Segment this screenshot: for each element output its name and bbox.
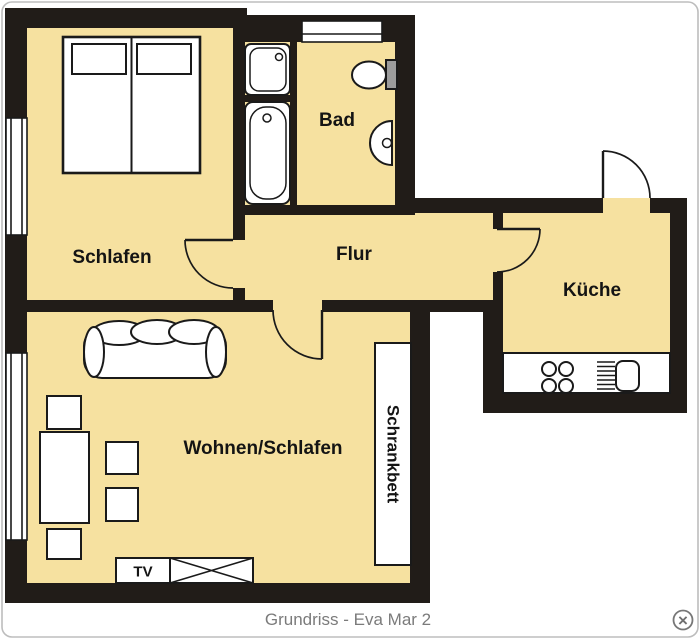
window-frame (6, 353, 27, 540)
door-entrance (603, 151, 650, 198)
wall-bed-icon: Schrankbett (375, 343, 411, 565)
label-flur: Flur (336, 244, 372, 265)
chair (47, 396, 81, 429)
wall-top (5, 8, 247, 28)
table (40, 432, 89, 523)
cabinet-icon (170, 558, 253, 583)
tv-label: TV (133, 564, 152, 581)
shower-drain (276, 54, 283, 61)
chair (106, 442, 138, 474)
lightbox: TV Schrankbett Schlafen Bad Flur Küche W… (0, 0, 700, 639)
tv-stand-icon: TV (116, 558, 170, 583)
wall-shower-tub-separator (245, 95, 292, 102)
wall-kueche-bottom (483, 393, 687, 413)
wall-bed-label: Schrankbett (384, 405, 403, 504)
sink-faucet (383, 139, 392, 148)
burner (542, 379, 556, 393)
pillow (137, 44, 191, 74)
close-icon-glyph[interactable]: × (678, 611, 688, 630)
burner (559, 379, 573, 393)
wall-bad-bottom (233, 205, 415, 215)
toilet-icon (352, 60, 397, 89)
opening-wohnen (273, 300, 322, 312)
pillow (72, 44, 126, 74)
window-wohnen (6, 353, 27, 540)
opening-entrance (603, 198, 650, 213)
sink-basin (616, 361, 639, 391)
sofa-armrest (84, 327, 104, 377)
toilet-tank (386, 60, 397, 89)
label-bad: Bad (319, 110, 355, 131)
chair (106, 488, 138, 521)
double-bed-icon (63, 37, 200, 173)
window-frame (6, 118, 27, 235)
drainboard-lines (597, 362, 615, 389)
tub-drain (263, 114, 271, 122)
label-wohnen: Wohnen/Schlafen (183, 438, 342, 459)
wall-bad-right (395, 15, 415, 213)
sofa-armrest (206, 327, 226, 377)
wall-bottom (5, 583, 430, 603)
burner (559, 362, 573, 376)
window-bad (302, 21, 382, 42)
window-frame (302, 21, 382, 42)
door-swing-arc (603, 151, 650, 198)
opening-schlafen (233, 240, 245, 288)
floor-plan: TV Schrankbett Schlafen Bad Flur Küche W… (0, 0, 700, 639)
label-schlafen: Schlafen (72, 247, 151, 268)
caption: Grundriss - Eva Mar 2 (265, 610, 431, 629)
chair (47, 529, 81, 559)
toilet-bowl (352, 62, 386, 89)
kitchen-counter (503, 353, 670, 393)
burner (542, 362, 556, 376)
window-schlafen (6, 118, 27, 235)
bathtub-icon (245, 102, 290, 204)
label-kueche: Küche (563, 280, 621, 301)
counter-outline (503, 353, 670, 393)
wall-wohnen-right (410, 300, 430, 603)
wall-kueche-right (670, 198, 687, 413)
sofa-icon (84, 320, 226, 378)
wall-tub-column (290, 42, 297, 207)
shower-icon (245, 44, 290, 95)
close-button[interactable]: × (674, 611, 693, 631)
opening-kueche (493, 229, 503, 272)
